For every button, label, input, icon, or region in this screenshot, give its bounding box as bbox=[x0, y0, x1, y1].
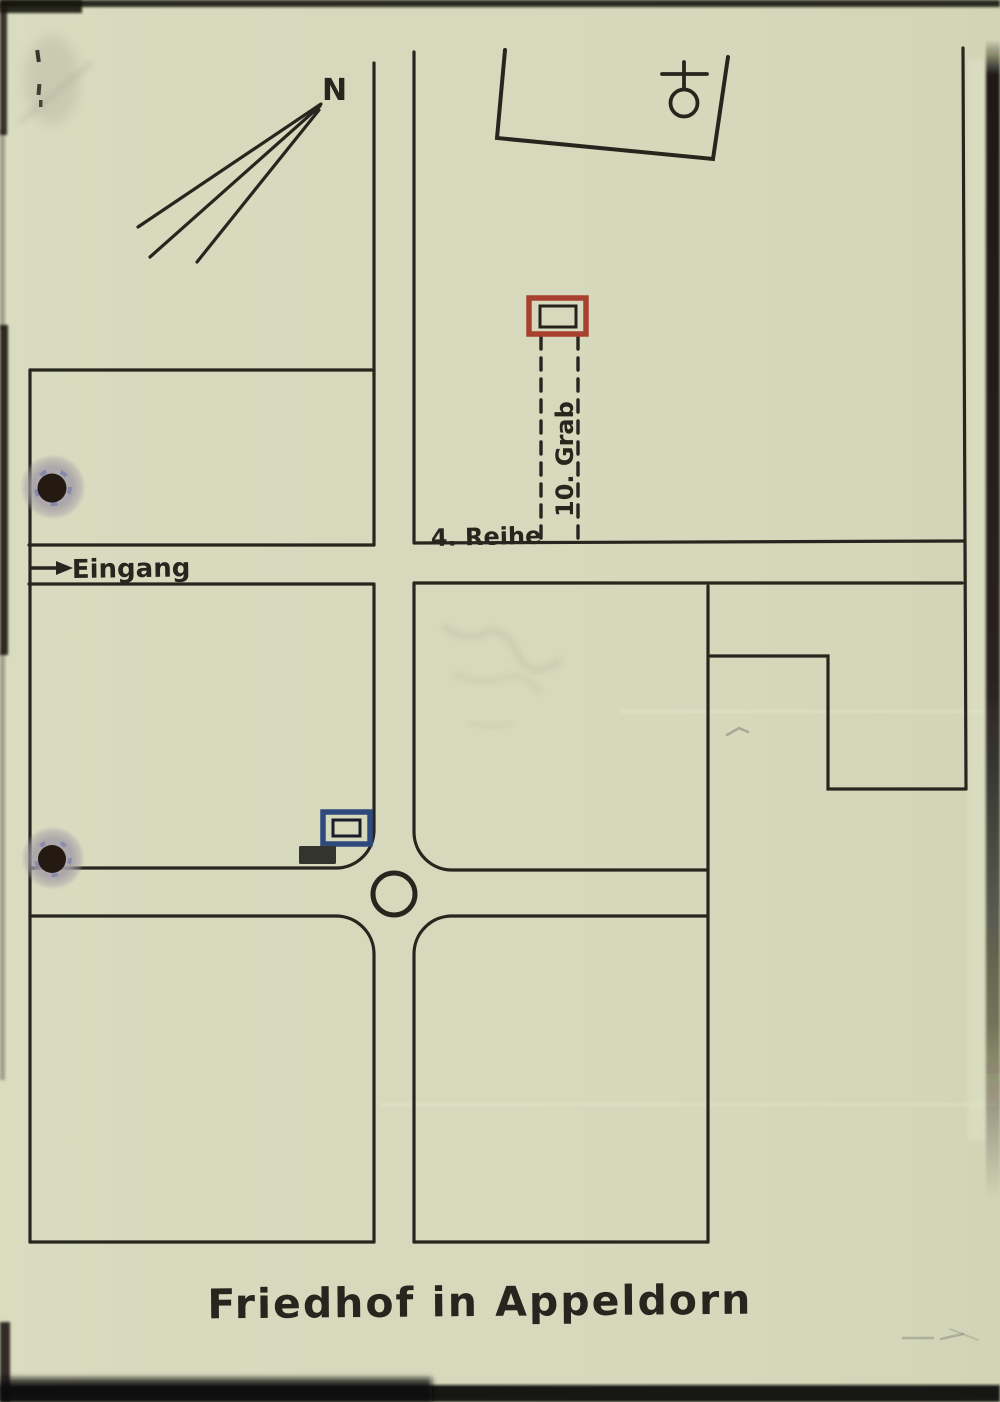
left-edge-shadow-mid bbox=[0, 325, 8, 655]
paper-light-streak bbox=[968, 60, 986, 1140]
hole-punch-top-hole bbox=[38, 474, 67, 503]
filled-block bbox=[299, 846, 336, 864]
hole-punch-top bbox=[20, 454, 86, 520]
left-edge-shadow-lower bbox=[0, 650, 5, 1080]
paper-crease-highlight-1 bbox=[620, 710, 992, 713]
map-title: Friedhof in Appeldorn bbox=[207, 1276, 752, 1329]
top-left-corner-blob bbox=[0, 0, 82, 13]
north-label: N bbox=[322, 73, 347, 108]
entrance-label: Eingang bbox=[72, 553, 191, 585]
left-edge-shadow-faint bbox=[0, 130, 5, 330]
paper-crease-highlight-2 bbox=[380, 1103, 995, 1106]
paper-tone-overlay bbox=[0, 0, 1000, 1402]
top-edge-shadow bbox=[0, 0, 1000, 7]
grave-label: 10. Grab bbox=[551, 401, 579, 517]
bottom-left-edge-thick bbox=[0, 1378, 432, 1402]
hole-punch-bottom bbox=[21, 826, 85, 890]
hole-punch-bottom-hole bbox=[38, 845, 66, 873]
left-edge-shadow-upper bbox=[0, 5, 7, 135]
row-label: 4. Reihe bbox=[431, 522, 542, 552]
right-edge-shadow bbox=[986, 40, 1000, 1200]
scanned-page: N Eingang 4. Reihe 10. Grab Friedhof in … bbox=[0, 0, 1000, 1402]
